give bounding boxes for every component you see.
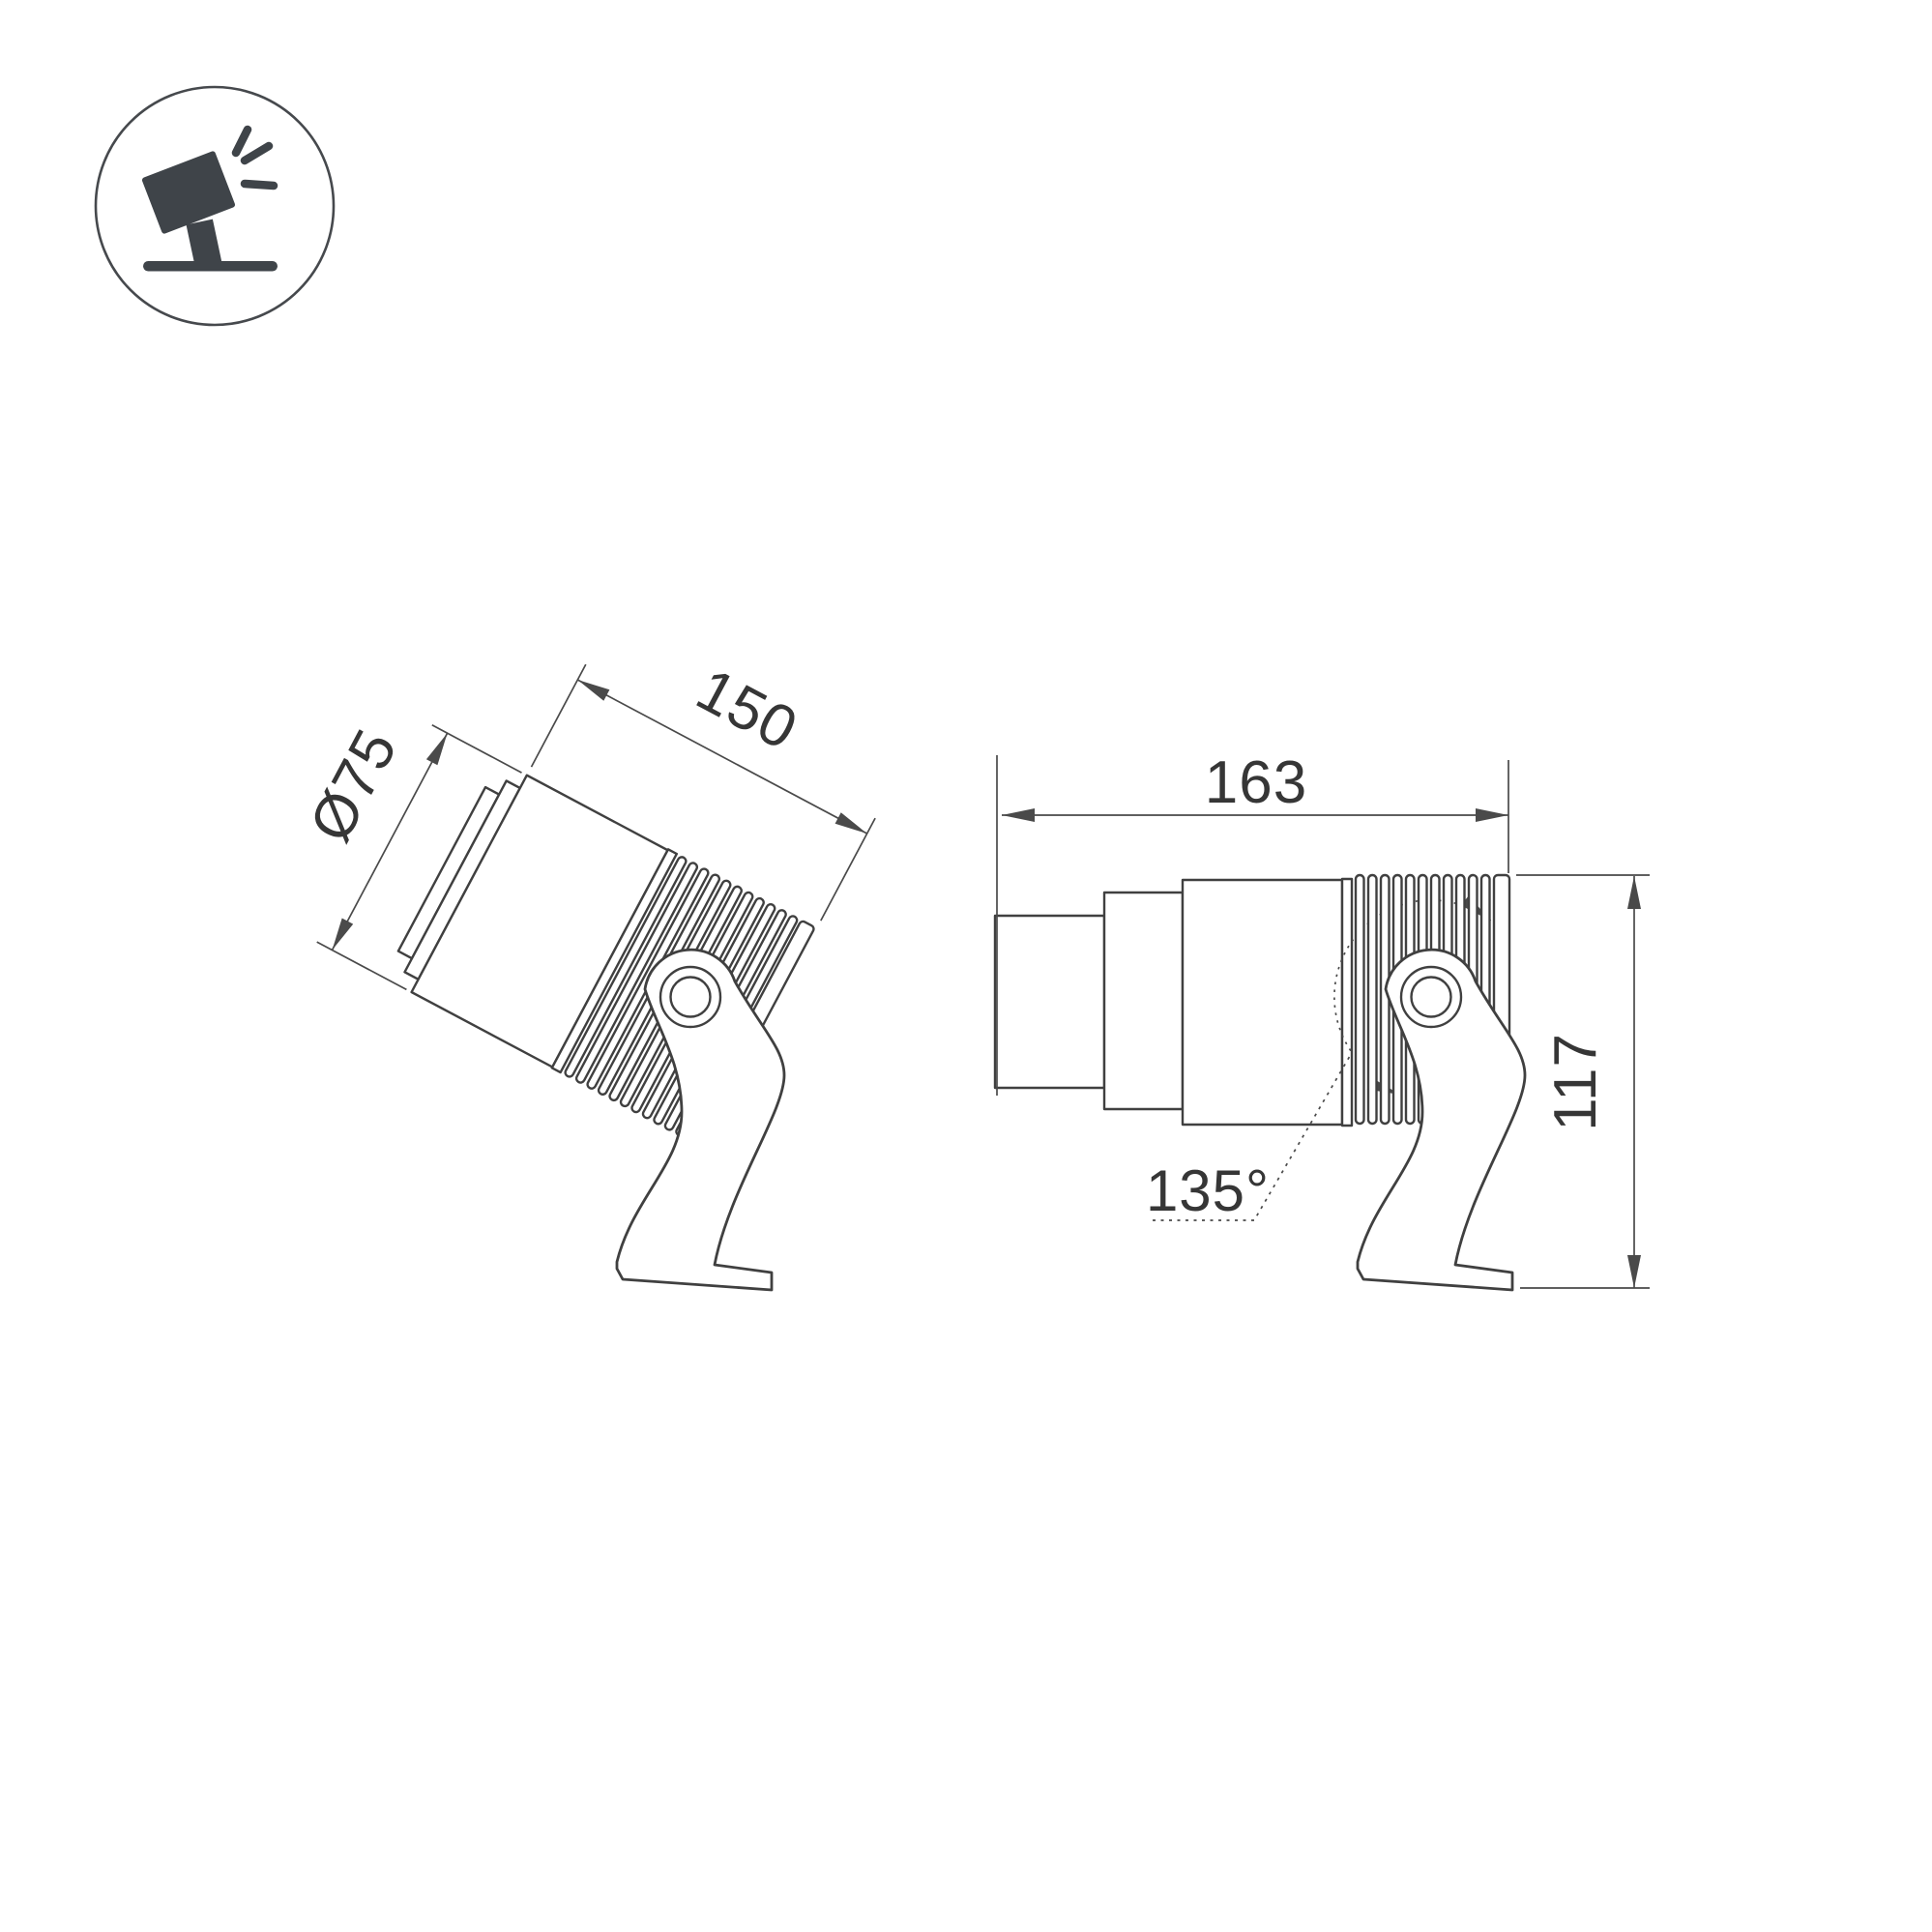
main-body — [1183, 880, 1342, 1125]
body-step — [1104, 893, 1183, 1109]
left-view-tilted-fixture — [384, 760, 815, 1290]
label-angle-135: 135° — [1146, 1158, 1270, 1223]
label-length-163: 163 — [1205, 749, 1307, 816]
spotlight-icon — [96, 87, 334, 325]
icon-lamp-stem — [187, 220, 222, 269]
left-pivot-hole — [671, 978, 711, 1017]
right-view-horizontal-fixture — [995, 875, 1525, 1290]
label-height-117: 117 — [1542, 1033, 1609, 1131]
icon-ground-base — [143, 261, 278, 272]
icon-light-rays — [236, 130, 274, 186]
fin-plate — [1342, 879, 1352, 1126]
right-pivot-hole — [1412, 978, 1451, 1017]
icon-lamp-head — [141, 151, 236, 235]
rear-cable-gland — [995, 916, 1104, 1088]
label-diameter-75: Ø75 — [297, 718, 410, 853]
technical-drawing-canvas: Ø75 150 163 117 135° — [0, 0, 1932, 1932]
